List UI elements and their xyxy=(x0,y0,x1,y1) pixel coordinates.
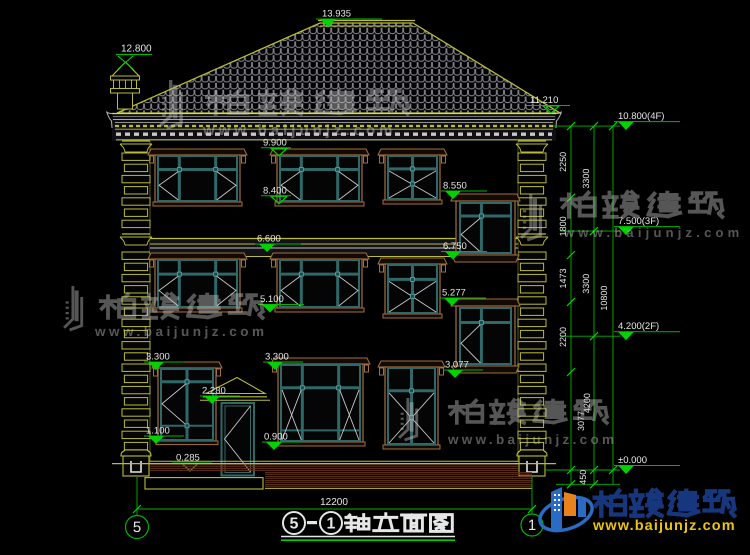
svg-text:3300: 3300 xyxy=(581,169,591,189)
svg-text:450: 450 xyxy=(578,470,588,485)
svg-text:3.300: 3.300 xyxy=(146,352,170,363)
svg-text:5.277: 5.277 xyxy=(442,288,466,299)
svg-text:4.200(2F): 4.200(2F) xyxy=(618,321,659,332)
svg-text:5: 5 xyxy=(133,519,141,536)
svg-text:11.210: 11.210 xyxy=(530,95,558,106)
svg-text:0.285: 0.285 xyxy=(176,453,200,464)
svg-text:5: 5 xyxy=(290,516,299,533)
svg-text:2200: 2200 xyxy=(558,327,568,347)
svg-text:12.800: 12.800 xyxy=(121,44,152,55)
svg-text:8.550: 8.550 xyxy=(443,181,467,192)
svg-text:3.077: 3.077 xyxy=(445,360,469,371)
svg-text:10.800(4F): 10.800(4F) xyxy=(618,111,664,122)
svg-text:13.935: 13.935 xyxy=(322,9,351,20)
svg-text:10800: 10800 xyxy=(599,286,609,311)
svg-text:1473: 1473 xyxy=(558,268,568,288)
svg-text:www.baijunjz.com: www.baijunjz.com xyxy=(592,518,736,534)
svg-text:8.400: 8.400 xyxy=(263,185,287,196)
svg-text:2.280: 2.280 xyxy=(202,386,226,397)
svg-text:1.100: 1.100 xyxy=(146,426,170,437)
svg-text:6.600: 6.600 xyxy=(257,234,281,245)
svg-text:12200: 12200 xyxy=(320,497,348,508)
svg-text:3.300: 3.300 xyxy=(265,352,289,363)
svg-text:6.750: 6.750 xyxy=(443,241,467,252)
svg-text:±0.000: ±0.000 xyxy=(618,455,647,466)
svg-text:2250: 2250 xyxy=(558,152,568,172)
svg-text:www.baijunjz.com: www.baijunjz.com xyxy=(447,432,617,447)
svg-text:www.baijunjz.com: www.baijunjz.com xyxy=(202,122,396,139)
svg-text:3300: 3300 xyxy=(581,274,591,294)
svg-text:1: 1 xyxy=(528,517,536,534)
svg-text:0.900: 0.900 xyxy=(264,432,288,443)
svg-text:5.100: 5.100 xyxy=(260,294,284,305)
svg-text:1: 1 xyxy=(327,516,336,533)
svg-text:www.baijunjz.com: www.baijunjz.com xyxy=(563,225,743,240)
svg-text:www.baijunjz.com: www.baijunjz.com xyxy=(94,324,268,339)
